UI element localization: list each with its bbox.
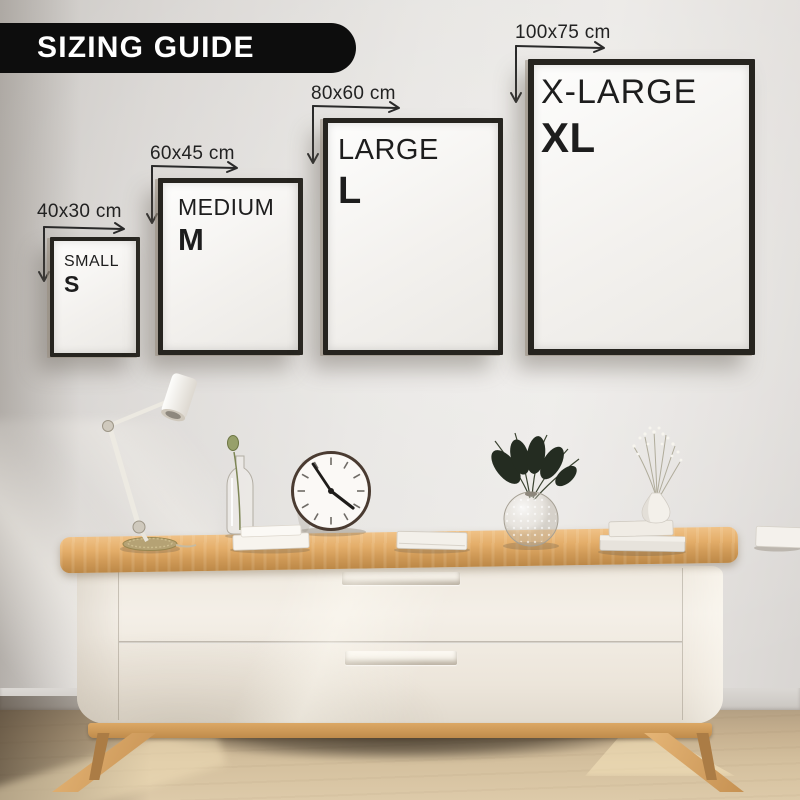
frame-medium: MEDIUM M	[158, 178, 303, 355]
frame-large: LARGE L	[323, 118, 503, 355]
dimension-label-xlarge: 100x75 cm	[515, 23, 611, 42]
frame-xlarge-abbr: XL	[541, 117, 596, 159]
cabinet-light-overlay	[77, 566, 723, 724]
dimension-label-medium: 60x45 cm	[150, 144, 235, 163]
frame-medium-abbr: M	[178, 224, 204, 255]
frame-small-name: SMALL	[64, 254, 119, 270]
sizing-guide-scene: SIZING GUIDE 40x30 cm 60x45 cm 80x60 cm …	[0, 0, 800, 800]
title-banner: SIZING GUIDE	[0, 23, 356, 73]
dimension-label-large: 80x60 cm	[311, 84, 396, 103]
cabinet-base-strip	[88, 723, 712, 738]
frame-xlarge: X-LARGE XL	[528, 59, 755, 355]
frame-large-abbr: L	[338, 172, 362, 210]
dimension-label-small: 40x30 cm	[37, 202, 122, 221]
frame-small: SMALL S	[50, 237, 140, 357]
frame-xlarge-name: X-LARGE	[541, 75, 697, 109]
frame-small-abbr: S	[64, 273, 80, 296]
page-title: SIZING GUIDE	[37, 31, 255, 65]
frame-large-name: LARGE	[338, 136, 439, 165]
frame-medium-name: MEDIUM	[178, 196, 274, 219]
